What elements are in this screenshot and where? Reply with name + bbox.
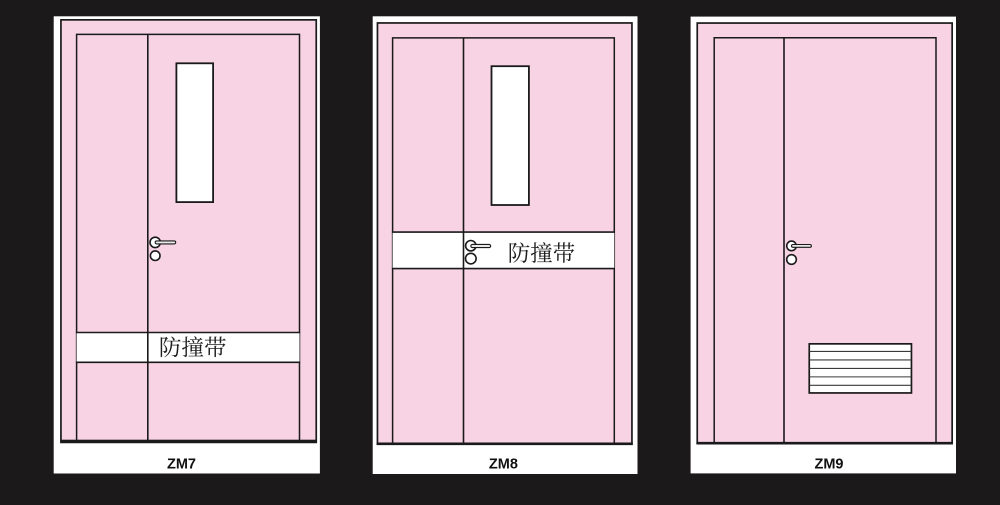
svg-text:ZM7: ZM7 (167, 457, 196, 473)
svg-text:ZM8: ZM8 (489, 456, 518, 472)
svg-text:ZM9: ZM9 (815, 456, 844, 472)
